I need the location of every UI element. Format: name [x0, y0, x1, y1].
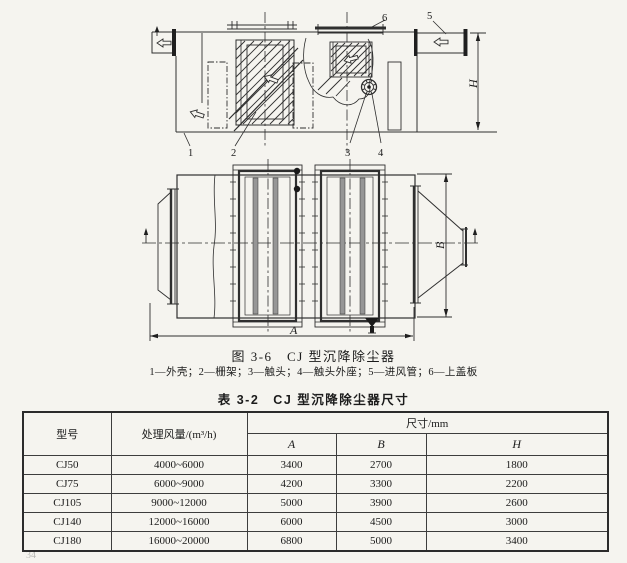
col-header-dims: 尺寸/mm — [247, 412, 608, 434]
cell-B: 3900 — [336, 494, 426, 513]
table-row: CJ180 16000~20000 6800 5000 3400 — [23, 532, 608, 551]
callout-6: 6 — [382, 13, 387, 24]
cell-model: CJ50 — [23, 456, 111, 475]
page-number: 34 — [26, 550, 36, 561]
col-header-airflow: 处理风量/(m³/h) — [111, 412, 247, 456]
callout-4: 4 — [378, 148, 384, 159]
grid-frame-right — [315, 159, 385, 333]
cell-H: 3400 — [426, 532, 608, 551]
table-row: CJ75 6000~9000 4200 3300 2200 — [23, 475, 608, 494]
scanned-book-page: 1 2 3 4 5 6 A B H 图 3-6 CJ 型沉降除尘器 1—外壳；2… — [0, 0, 627, 563]
cell-H: 2600 — [426, 494, 608, 513]
cell-airflow: 4000~6000 — [111, 456, 247, 475]
figure-drawing: 1 2 3 4 5 6 A B H — [0, 0, 627, 345]
callout-1: 1 — [188, 148, 193, 159]
cell-H: 2200 — [426, 475, 608, 494]
col-header-B: B — [336, 434, 426, 456]
top-view — [152, 12, 497, 153]
dim-label-H: H — [466, 78, 480, 89]
plan-view — [142, 159, 478, 341]
table-row: CJ140 12000~16000 6000 4500 3000 — [23, 513, 608, 532]
figure-parts-list: 1—外壳；2—栅架；3—触头；4—触头外座；5—进风管；6—上盖板 — [0, 364, 627, 379]
flow-arrow-icon — [157, 39, 171, 47]
dim-label-A: A — [289, 323, 298, 337]
bolt-dot — [294, 186, 300, 192]
table-row: CJ105 9000~12000 5000 3900 2600 — [23, 494, 608, 513]
table-title: 表 3-2 CJ 型沉降除尘器尺寸 — [0, 389, 627, 408]
cell-A: 6000 — [247, 513, 336, 532]
cell-B: 4500 — [336, 513, 426, 532]
col-header-H: H — [426, 434, 608, 456]
drain-funnel — [365, 318, 379, 327]
cell-airflow: 12000~16000 — [111, 513, 247, 532]
cutaway-outline — [304, 38, 373, 105]
grid-frame-left — [233, 159, 302, 333]
callout-2: 2 — [231, 148, 236, 159]
cell-airflow: 9000~12000 — [111, 494, 247, 513]
callout-5: 5 — [427, 11, 432, 22]
col-header-A: A — [247, 434, 336, 456]
col-header-model: 型号 — [23, 412, 111, 456]
cell-B: 3300 — [336, 475, 426, 494]
dim-label-B: B — [433, 241, 447, 249]
dimensions-table: 型号 处理风量/(m³/h) 尺寸/mm A B H CJ50 4000~600… — [22, 411, 609, 552]
leader-lines — [184, 20, 446, 146]
cell-A: 3400 — [247, 456, 336, 475]
cell-model: CJ105 — [23, 494, 111, 513]
cell-A: 6800 — [247, 532, 336, 551]
flow-arrow-icon — [434, 38, 448, 46]
cell-H: 1800 — [426, 456, 608, 475]
figure-caption: 图 3-6 CJ 型沉降除尘器 — [0, 346, 627, 365]
cell-H: 3000 — [426, 513, 608, 532]
break-line — [213, 175, 215, 318]
callout-3: 3 — [345, 148, 350, 159]
cell-model: CJ140 — [23, 513, 111, 532]
cell-B: 5000 — [336, 532, 426, 551]
flow-arrow-icon — [189, 108, 205, 120]
table-row: CJ50 4000~6000 3400 2700 1800 — [23, 456, 608, 475]
bolt-dot — [294, 168, 300, 174]
cell-airflow: 6000~9000 — [111, 475, 247, 494]
cell-airflow: 16000~20000 — [111, 532, 247, 551]
cell-A: 5000 — [247, 494, 336, 513]
cell-model: CJ180 — [23, 532, 111, 551]
cell-model: CJ75 — [23, 475, 111, 494]
cell-A: 4200 — [247, 475, 336, 494]
cell-B: 2700 — [336, 456, 426, 475]
